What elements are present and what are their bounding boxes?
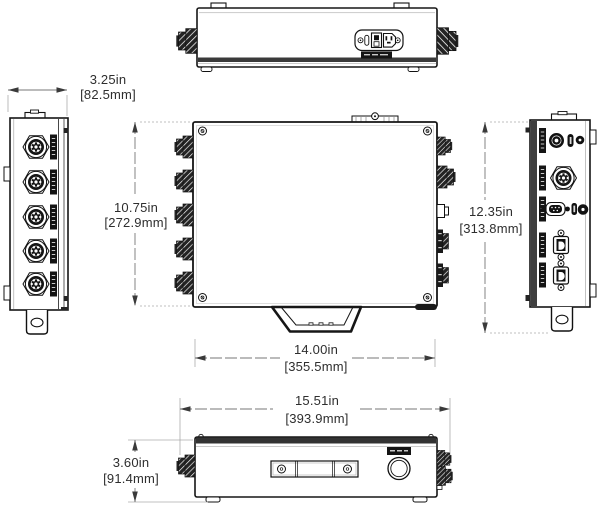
corner-screw-icon (424, 127, 432, 135)
rear-view (176, 3, 458, 72)
dim-front-height-mm: [272.9mm] (104, 215, 167, 230)
front-right-port-icon (437, 264, 449, 288)
bottom-trim-band (196, 438, 436, 444)
carry-handle (272, 307, 361, 332)
dim-overall-width-mm: [393.9mm] (285, 411, 348, 426)
rear-left-connector-icon (176, 29, 197, 54)
right-mounting-tab (552, 307, 573, 331)
connector-label (50, 135, 57, 160)
right-edge-tab-lower (590, 284, 596, 297)
right-edge-tab-upper (590, 130, 596, 144)
rear-trim-band (198, 58, 436, 63)
front-left-connector-icon (175, 238, 194, 260)
front-top-bracket (352, 113, 398, 123)
rear-foot-left (201, 67, 212, 72)
power-inlet-module-icon (355, 30, 403, 51)
dimension-front-width: 14.00in [355.5mm] (195, 339, 435, 374)
round-port-icon (388, 458, 410, 480)
corner-screw-icon (424, 294, 432, 302)
iec-inlet-icon (384, 34, 396, 48)
right-side-view (526, 112, 597, 332)
fuse-drawer-icon (365, 35, 369, 45)
drawing-canvas: 3.25in [82.5mm] 10.75in [272.9mm] 12.35i… (0, 0, 600, 508)
front-left-connector-icon (175, 204, 194, 226)
connector-label (539, 128, 546, 153)
front-right-port-icon (437, 230, 449, 254)
dim-side-height-in: 3.60in (113, 455, 150, 470)
rear-foot-right (408, 67, 419, 72)
connector-label (539, 233, 546, 258)
dim-overall-height-mm: [313.8mm] (459, 221, 522, 236)
bottom-right-connector-icon (437, 450, 451, 467)
front-view (175, 113, 456, 332)
power-switch-icon (372, 33, 382, 48)
dim-side-width-mm: [82.5mm] (80, 87, 136, 102)
enclosure-drawing: 3.25in [82.5mm] 10.75in [272.9mm] 12.35i… (0, 0, 600, 508)
dim-side-width-in: 3.25in (90, 72, 127, 87)
dim-overall-width-in: 15.51in (295, 393, 339, 408)
front-left-connector-icon (175, 170, 194, 192)
dimension-side-width: 3.25in [82.5mm] (8, 72, 136, 116)
bottom-connector-edge (415, 304, 437, 310)
dim-side-height-mm: [91.4mm] (103, 471, 159, 486)
dc-jack-icon (549, 133, 564, 148)
front-right-button-icon (437, 205, 449, 218)
handle-plate (271, 461, 358, 477)
connector-label (50, 272, 57, 297)
foot-right (413, 497, 427, 502)
bottom-view (177, 434, 453, 502)
bottom-right-connector-icon (437, 467, 453, 486)
left-side-view (4, 110, 69, 334)
corner-screw-icon (199, 294, 207, 302)
front-right-connector-icon (437, 166, 456, 188)
left-mounting-tab (27, 310, 48, 334)
dim-front-height-in: 10.75in (114, 200, 158, 215)
dim-front-width-in: 14.00in (294, 342, 338, 357)
front-left-connector-icon (175, 136, 194, 158)
front-left-connector-icon (175, 272, 194, 294)
bottom-left-connector-icon (177, 455, 196, 477)
dim-front-width-mm: [355.5mm] (284, 359, 347, 374)
connector-label (50, 170, 57, 195)
front-right-connector-icon (437, 137, 452, 155)
rear-right-connector-icon (437, 28, 458, 54)
connector-label (539, 166, 546, 191)
foot-left (206, 497, 220, 502)
left-edge-tab-upper (4, 167, 10, 181)
dim-overall-height-in: 12.35in (469, 204, 513, 219)
corner-screw-icon (199, 127, 207, 135)
connector-label (50, 205, 57, 230)
connector-label (539, 263, 546, 288)
front-panel (193, 122, 437, 307)
left-edge-tab-lower (4, 286, 10, 300)
connector-label (50, 239, 57, 264)
